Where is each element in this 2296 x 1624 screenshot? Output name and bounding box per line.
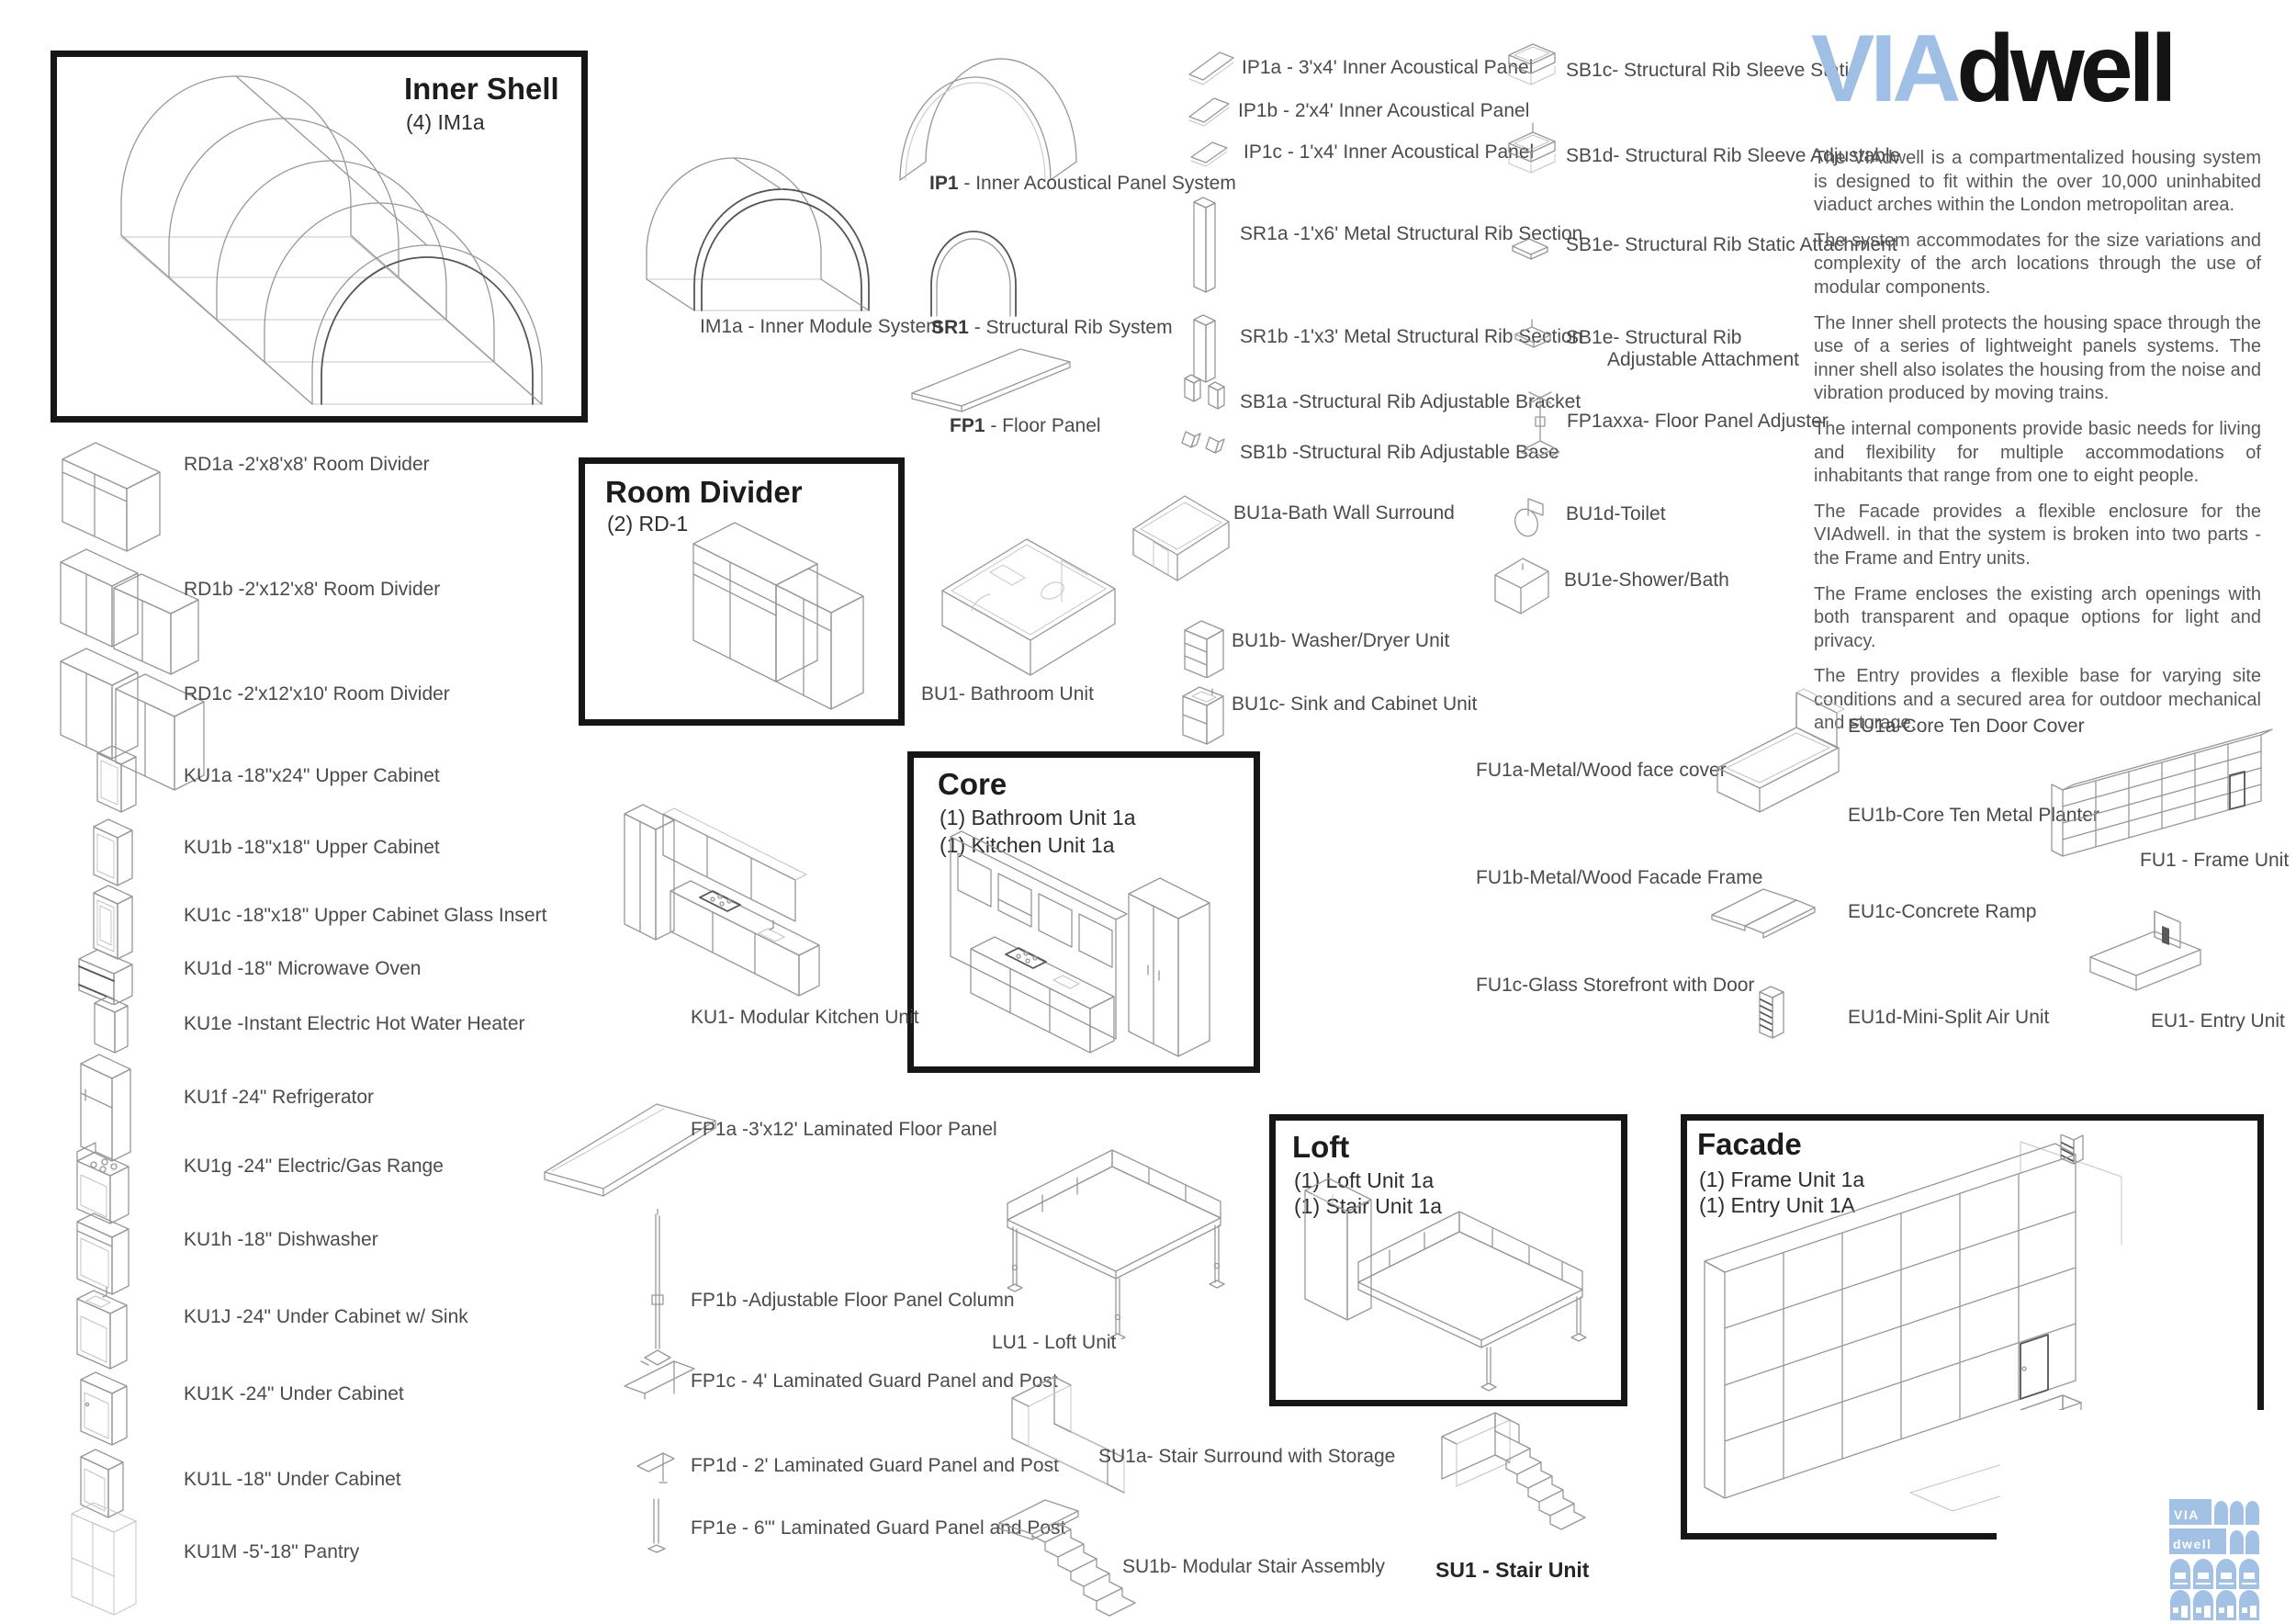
label-ku1j: KU1J -24" Under Cabinet w/ Sink <box>184 1306 468 1328</box>
label-rd1b: RD1b -2'x12'x8' Room Divider <box>184 579 440 601</box>
ip1b-icon <box>1185 92 1238 130</box>
su1b-drawing <box>992 1488 1141 1622</box>
facade-border-right <box>2257 1114 2264 1410</box>
label-su1b: SU1b- Modular Stair Assembly <box>1122 1556 1385 1578</box>
bu1c-icon <box>1176 669 1232 746</box>
lu1-drawing <box>995 1130 1235 1339</box>
intro-paragraph: The internal components provide basic ne… <box>1814 418 2261 489</box>
ku1a-icon <box>90 742 149 818</box>
fp1-drawing <box>905 342 1079 420</box>
sb1e-adjustable-icon <box>1510 312 1556 355</box>
concrete-ramp-drawing <box>1705 869 1824 953</box>
intro-text: The VIAdwell is a compartmentalized hous… <box>1814 147 2261 748</box>
brand-logotype: VIAdwell <box>1811 17 2172 121</box>
label-bu1a: BU1a-Bath Wall Surround <box>1233 502 1455 524</box>
label-eu1c: EU1c-Concrete Ramp <box>1848 901 2036 923</box>
label-su1: SU1 - Stair Unit <box>1435 1558 1589 1583</box>
brand-dwell: dwell <box>1956 16 2172 122</box>
label-ku1: KU1- Modular Kitchen Unit <box>691 1007 919 1029</box>
label-im1a: IM1a - Inner Module System <box>700 316 942 338</box>
fp1axxa-icon <box>1515 384 1565 470</box>
label-ku1a: KU1a -18"x24" Upper Cabinet <box>184 765 440 787</box>
intro-paragraph: The VIAdwell is a compartmentalized hous… <box>1814 147 2261 218</box>
label-ku1f: KU1f -24" Refrigerator <box>184 1087 374 1109</box>
facade-border-left <box>1681 1114 1687 1539</box>
ku1-kitchen-drawing <box>612 768 887 999</box>
bu1d-icon <box>1508 488 1550 541</box>
intro-paragraph: The system accommodates for the size var… <box>1814 230 2261 300</box>
label-fu1c: FU1c-Glass Storefront with Door <box>1476 975 1754 997</box>
ku1e-icon <box>88 992 138 1060</box>
sr1-drawing <box>917 195 1031 325</box>
facade-border-bottom <box>1681 1533 1997 1539</box>
sb1b-icon <box>1176 423 1232 459</box>
label-sb1b: SB1b -Structural Rib Adjustable Base <box>1240 442 1559 464</box>
sb1a-icon <box>1178 367 1233 419</box>
fp1a-icon <box>535 1084 728 1226</box>
intro-paragraph: The Inner shell protects the housing spa… <box>1814 312 2261 406</box>
eu1-entry-drawing <box>2083 900 2210 1003</box>
core-title: Core <box>938 767 1007 802</box>
label-fu1a: FU1a-Metal/Wood face cover <box>1476 760 1727 782</box>
intro-paragraph: The Facade provides a flexible enclosure… <box>1814 501 2261 571</box>
core-ten-cover-drawing <box>1708 683 1848 829</box>
svg-text:dwell: dwell <box>2173 1537 2212 1551</box>
inner-shell-drawing <box>64 66 574 408</box>
bu1a-icon <box>1126 474 1234 593</box>
label-su1a: SU1a- Stair Surround with Storage <box>1098 1446 1395 1468</box>
core-drawing <box>934 818 1242 1061</box>
loft-drawing <box>1279 1172 1619 1393</box>
label-ku1e: KU1e -Instant Electric Hot Water Heater <box>184 1013 525 1035</box>
su1a-drawing <box>999 1365 1137 1499</box>
label-ku1m: KU1M -5'-18" Pantry <box>184 1541 359 1563</box>
bu1-bathroom-drawing <box>935 501 1123 689</box>
label-ip1b: IP1b - 2'x4' Inner Acoustical Panel <box>1238 100 1529 122</box>
label-fu1: FU1 - Frame Unit <box>2140 850 2289 872</box>
label-fp1a: FP1a -3'x12' Laminated Floor Panel <box>691 1119 997 1141</box>
label-fp1b: FP1b -Adjustable Floor Panel Column <box>691 1290 1015 1312</box>
ip1-drawing <box>874 24 1081 189</box>
label-ku1l: KU1L -18" Under Cabinet <box>184 1469 401 1491</box>
brand-via: VIA <box>1811 16 1956 122</box>
label-rd1c: RD1c -2'x12'x10' Room Divider <box>184 683 450 705</box>
ip1c-icon <box>1187 134 1238 171</box>
label-ku1d: KU1d -18" Microwave Oven <box>184 958 421 980</box>
su1-drawing <box>1425 1396 1595 1562</box>
room-divider-box: Room Divider (2) RD-1 <box>579 457 905 726</box>
room-divider-drawing <box>675 502 895 716</box>
viadwell-stamp-logo: VIA dwell <box>2169 1497 2261 1620</box>
intro-paragraph: The Frame encloses the existing arch ope… <box>1814 583 2261 654</box>
label-ip1a: IP1a - 3'x4' Inner Acoustical Panel <box>1242 57 1533 79</box>
fp1e-icon <box>641 1492 672 1556</box>
label-sb1e-adjustable-1: SB1e- Structural Rib <box>1566 327 1741 349</box>
im1a-drawing <box>632 129 875 331</box>
label-ku1h: KU1h -18" Dishwasher <box>184 1229 378 1251</box>
label-bu1c: BU1c- Sink and Cabinet Unit <box>1232 694 1477 716</box>
label-fp1axxa: FP1axxa- Floor Panel Adjuster <box>1567 411 1829 433</box>
label-sr1: SR1 - Structural Rib System <box>931 317 1173 339</box>
label-ku1c: KU1c -18"x18" Upper Cabinet Glass Insert <box>184 905 546 927</box>
fp1d-icon <box>630 1422 681 1492</box>
bu1b-icon <box>1177 604 1232 678</box>
svg-text:VIA: VIA <box>2174 1507 2200 1522</box>
page: { "brand": {"via": "VIA", "dwell": "dwel… <box>0 0 2296 1624</box>
label-sb1e-adjustable-2: Adjustable Attachment <box>1607 349 1799 371</box>
label-ku1k: KU1K -24" Under Cabinet <box>184 1383 404 1405</box>
label-fp1: FP1 - Floor Panel <box>950 415 1101 437</box>
ip1a-icon <box>1185 46 1238 90</box>
sr1a-icon <box>1187 182 1225 294</box>
label-bu1d: BU1d-Toilet <box>1566 503 1666 525</box>
fp1c-icon <box>619 1344 702 1408</box>
label-bu1: BU1- Bathroom Unit <box>921 683 1094 705</box>
label-bu1e: BU1e-Shower/Bath <box>1564 570 1729 592</box>
label-rd1a: RD1a -2'x8'x8' Room Divider <box>184 454 430 476</box>
label-eu1: EU1- Entry Unit <box>2151 1010 2285 1032</box>
mini-split-drawing <box>1750 981 1796 1045</box>
loft-title: Loft <box>1292 1130 1349 1165</box>
bu1e-icon <box>1490 546 1554 623</box>
ku1m-icon <box>64 1501 152 1624</box>
core-box: Core (1) Bathroom Unit 1a (1) Kitchen Un… <box>907 751 1260 1073</box>
label-eu1d: EU1d-Mini-Split Air Unit <box>1848 1007 2049 1029</box>
facade-border-top <box>1681 1114 2264 1121</box>
inner-shell-box: Inner Shell (4) IM1a <box>51 51 588 423</box>
label-lu1: LU1 - Loft Unit <box>992 1332 1116 1354</box>
label-ku1g: KU1g -24" Electric/Gas Range <box>184 1156 444 1178</box>
label-ku1b: KU1b -18"x18" Upper Cabinet <box>184 837 440 859</box>
sb1d-icon <box>1500 119 1562 182</box>
loft-box: Loft (1) Loft Unit 1a (1) Stair Unit 1a <box>1269 1114 1627 1406</box>
label-ip1c: IP1c - 1'x4' Inner Acoustical Panel <box>1244 141 1534 164</box>
sb1e-static-icon <box>1507 224 1553 261</box>
sb1c-icon <box>1500 35 1560 88</box>
label-bu1b: BU1b- Washer/Dryer Unit <box>1232 630 1449 652</box>
